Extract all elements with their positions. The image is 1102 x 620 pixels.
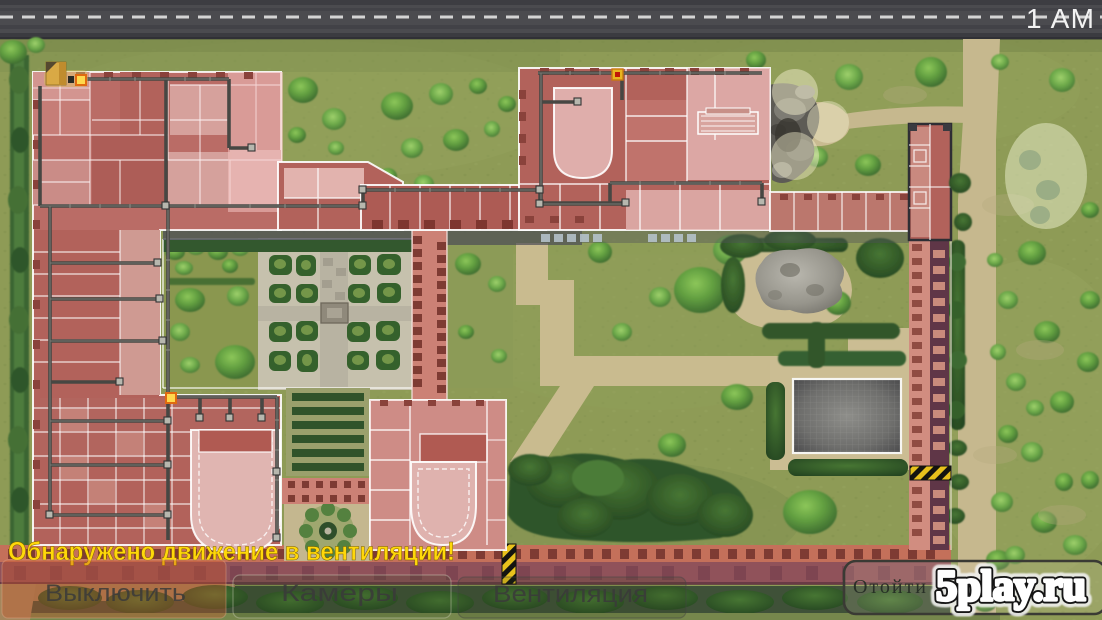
svg-text:Выключить: Выключить	[45, 580, 186, 607]
svg-text:Камеры: Камеры	[281, 580, 398, 607]
svg-text:Вентиляция: Вентиляция	[493, 581, 648, 608]
svg-text:Отойти: Отойти	[853, 576, 926, 598]
svg-text:5play.ru: 5play.ru	[936, 563, 1086, 610]
svg-text:1 AM: 1 AM	[1026, 3, 1096, 34]
